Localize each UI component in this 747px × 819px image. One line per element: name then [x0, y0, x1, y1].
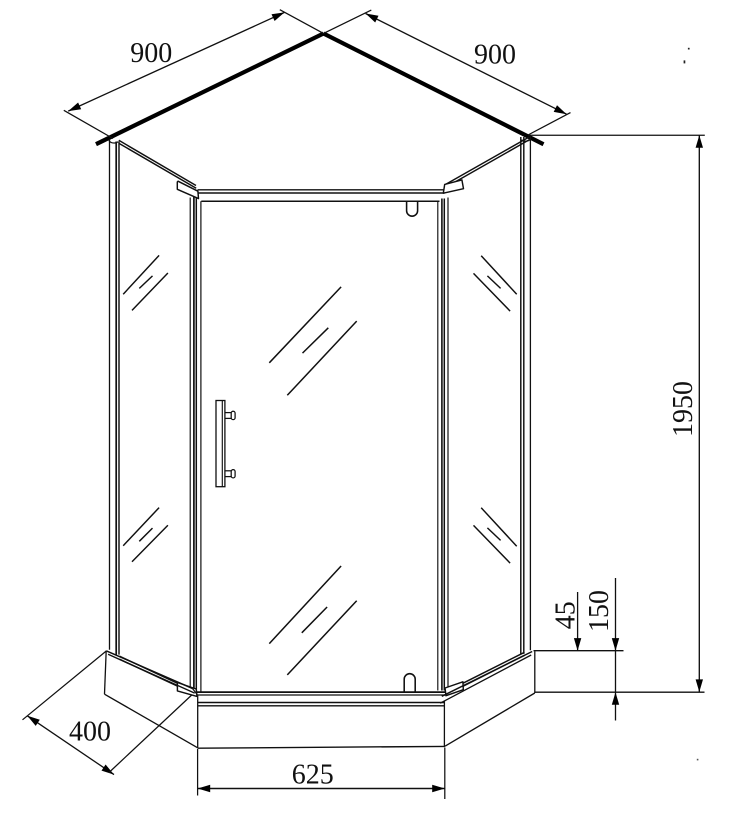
svg-text:1950: 1950 — [668, 381, 699, 437]
svg-text:900: 900 — [130, 38, 172, 69]
svg-text:150: 150 — [584, 590, 615, 632]
svg-text:625: 625 — [292, 760, 334, 791]
svg-text:45: 45 — [551, 601, 582, 629]
svg-text:900: 900 — [474, 40, 516, 71]
svg-text:400: 400 — [69, 717, 111, 748]
